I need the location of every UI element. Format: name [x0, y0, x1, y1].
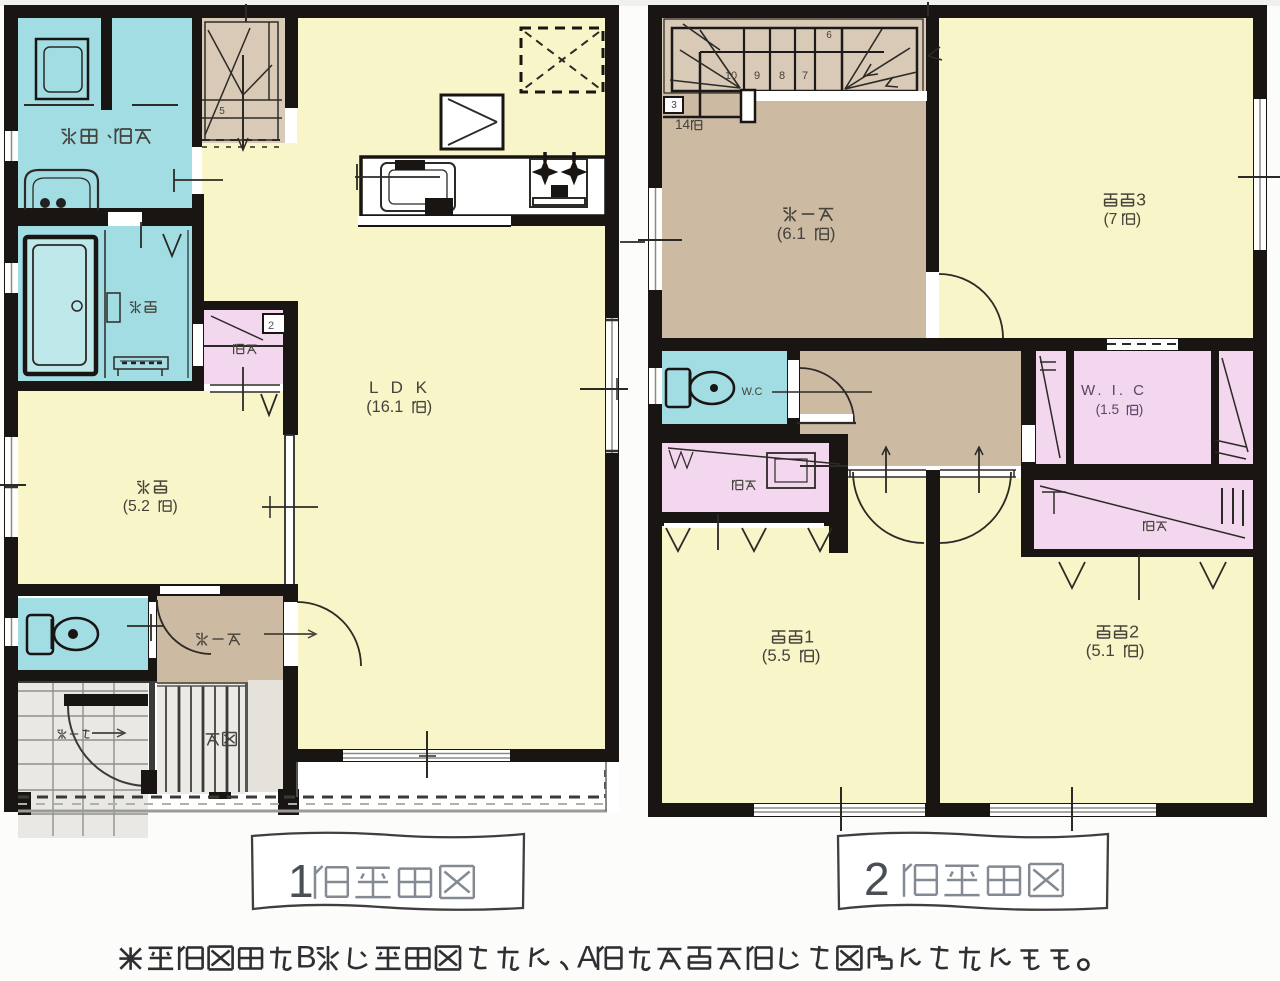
svg-text:(6.1: (6.1 [777, 224, 806, 243]
svg-text:14: 14 [675, 117, 691, 132]
svg-text:(5.5: (5.5 [762, 646, 791, 665]
svg-text:B: B [296, 939, 317, 975]
svg-text:): ) [173, 498, 178, 515]
svg-text:A: A [577, 939, 598, 975]
svg-text:W. I. C: W. I. C [1081, 382, 1147, 399]
svg-text:): ) [1139, 402, 1144, 417]
svg-text:3: 3 [671, 100, 677, 111]
svg-text:W.C: W.C [742, 386, 763, 398]
svg-text:(7: (7 [1103, 211, 1117, 228]
svg-text:(5.1: (5.1 [1086, 641, 1115, 660]
svg-text:L D K: L D K [369, 378, 431, 397]
svg-text:): ) [1139, 641, 1145, 660]
svg-text:2: 2 [1129, 621, 1139, 641]
svg-text:9: 9 [754, 70, 760, 82]
svg-text:6: 6 [826, 30, 832, 41]
svg-text:5: 5 [219, 106, 225, 117]
svg-text:(16.1: (16.1 [366, 398, 403, 416]
svg-text:2: 2 [864, 853, 890, 905]
svg-text:): ) [1136, 211, 1141, 228]
svg-text:8: 8 [779, 70, 785, 82]
svg-text:1: 1 [288, 855, 314, 907]
svg-text:): ) [815, 646, 821, 665]
svg-text:2: 2 [268, 320, 274, 332]
svg-text:): ) [830, 224, 836, 243]
svg-text:): ) [427, 398, 432, 416]
svg-text:1: 1 [804, 626, 814, 646]
svg-text:3: 3 [1136, 189, 1146, 209]
svg-text:(5.2: (5.2 [123, 498, 150, 515]
svg-text:7: 7 [802, 70, 808, 82]
svg-text:(1.5: (1.5 [1096, 402, 1120, 417]
svg-text:10: 10 [725, 70, 737, 82]
